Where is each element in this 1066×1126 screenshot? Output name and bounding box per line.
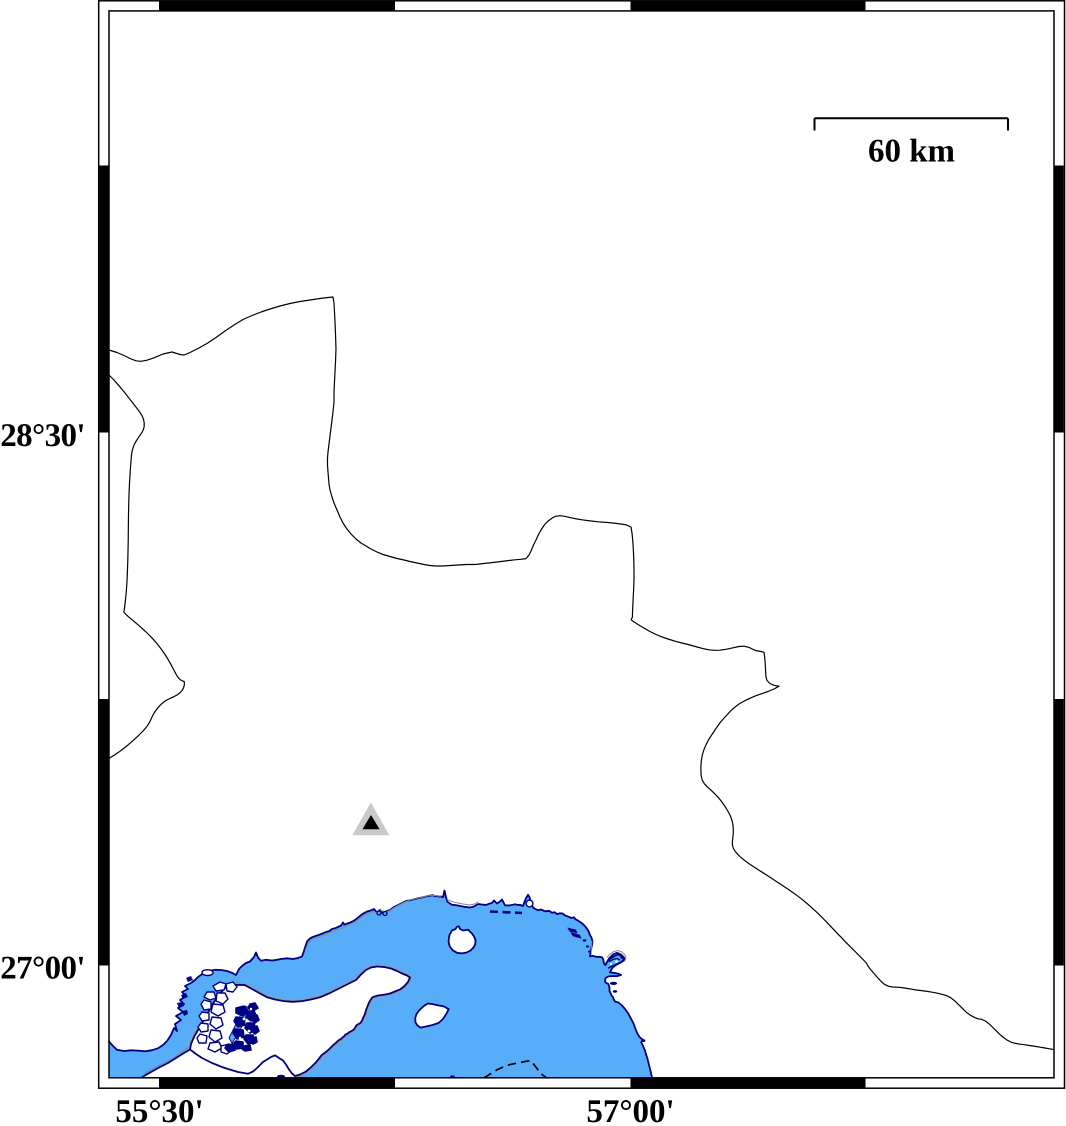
svg-text:27°00': 27°00'	[0, 951, 85, 987]
svg-text:28°30': 28°30'	[0, 418, 85, 454]
svg-text:57°00': 57°00'	[586, 1094, 674, 1126]
svg-text:55°30': 55°30'	[115, 1094, 203, 1126]
svg-text:60 km: 60 km	[868, 134, 955, 170]
